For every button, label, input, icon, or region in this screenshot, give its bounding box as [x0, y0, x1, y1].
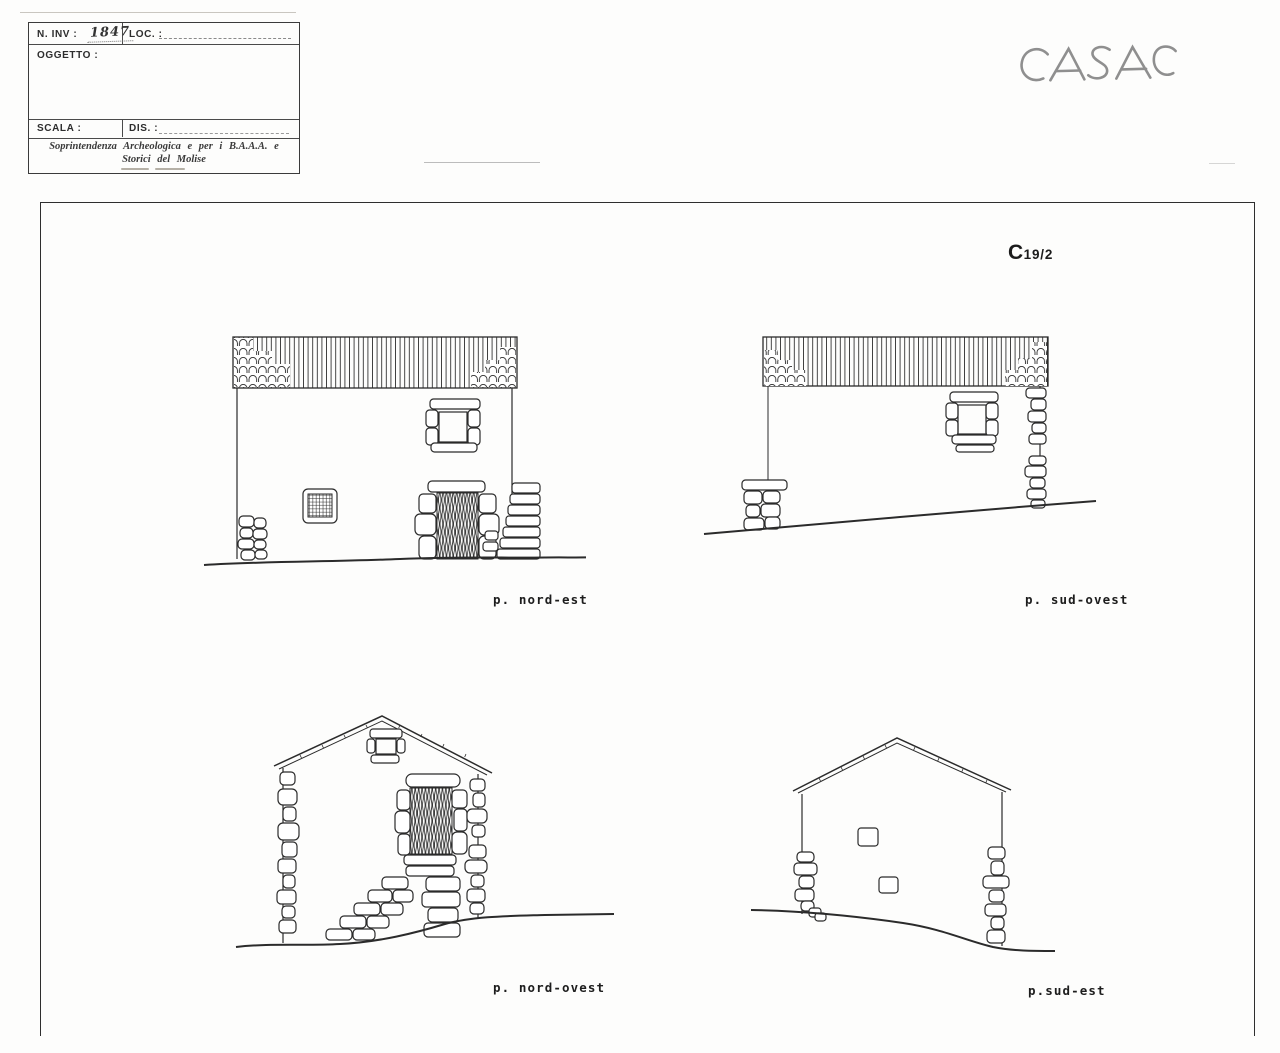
- elevation-label-sud-est: p.sud-est: [1028, 983, 1106, 998]
- corner-quoins-right: [1025, 388, 1046, 508]
- dis-write-line: [159, 133, 289, 134]
- sheet-reference: C19/2: [1008, 241, 1053, 265]
- institution-line-2: Storici del Molise: [29, 154, 299, 165]
- window: [946, 392, 998, 452]
- elevation-drawing-nord-ovest: [230, 705, 630, 960]
- attic-window: [367, 729, 405, 763]
- corner-quoins-right: [465, 779, 487, 914]
- oggetto-label: OGGETTO :: [37, 50, 98, 61]
- stone-pile: [238, 516, 267, 560]
- window: [426, 399, 480, 452]
- corner-quoins-right: [983, 847, 1009, 943]
- corner-quoins-left: [794, 852, 826, 921]
- illegible-small-print: [155, 168, 185, 170]
- sheet-ref-number: 19/2: [1024, 247, 1053, 262]
- inv-value: 1847: [87, 24, 134, 43]
- scala-label: SCALA :: [37, 123, 81, 134]
- dis-label: DIS. :: [129, 123, 158, 134]
- stone-steps: [326, 877, 460, 940]
- corner-quoins-left: [277, 772, 299, 933]
- elevation-label-nord-ovest: p. nord-ovest: [493, 980, 605, 995]
- wall-outline: [768, 386, 1040, 528]
- wall-opening: [858, 828, 898, 893]
- scan-artifact-line: [1209, 163, 1235, 164]
- elevation-label-sud-ovest: p. sud-ovest: [1025, 592, 1129, 607]
- scanned-drawing-sheet: N. INV : 1847 LOC. : OGGETTO : SCALA : D…: [0, 0, 1280, 1053]
- roof: [233, 337, 517, 388]
- grated-window: [303, 489, 337, 523]
- loc-write-line: [159, 38, 291, 39]
- elevation-drawing-sud-est: [745, 705, 1145, 965]
- stone-pillar: [742, 480, 787, 530]
- scan-artifact-dash: [20, 12, 296, 13]
- roof: [763, 337, 1048, 386]
- institution-line-1: Soprintendenza Archeologica e per i B.A.…: [29, 141, 299, 152]
- title-block-stamp: N. INV : 1847 LOC. : OGGETTO : SCALA : D…: [28, 22, 300, 174]
- handwritten-title: [1011, 32, 1188, 99]
- loc-label: LOC. :: [129, 29, 163, 40]
- stamp-cell-divider: [122, 119, 123, 137]
- gable-roof: [793, 738, 1011, 793]
- gable-roof: [274, 716, 492, 775]
- elevation-drawing-sud-ovest: [700, 328, 1100, 590]
- elevation-drawing-nord-est: [200, 328, 590, 590]
- door: [395, 774, 467, 876]
- ground-line: [751, 910, 1055, 951]
- illegible-small-print: [121, 168, 149, 170]
- sheet-ref-letter: C: [1008, 241, 1024, 264]
- scan-artifact-line: [424, 162, 540, 163]
- elevation-label-nord-est: p. nord-est: [493, 592, 588, 607]
- inv-label: N. INV :: [37, 29, 77, 40]
